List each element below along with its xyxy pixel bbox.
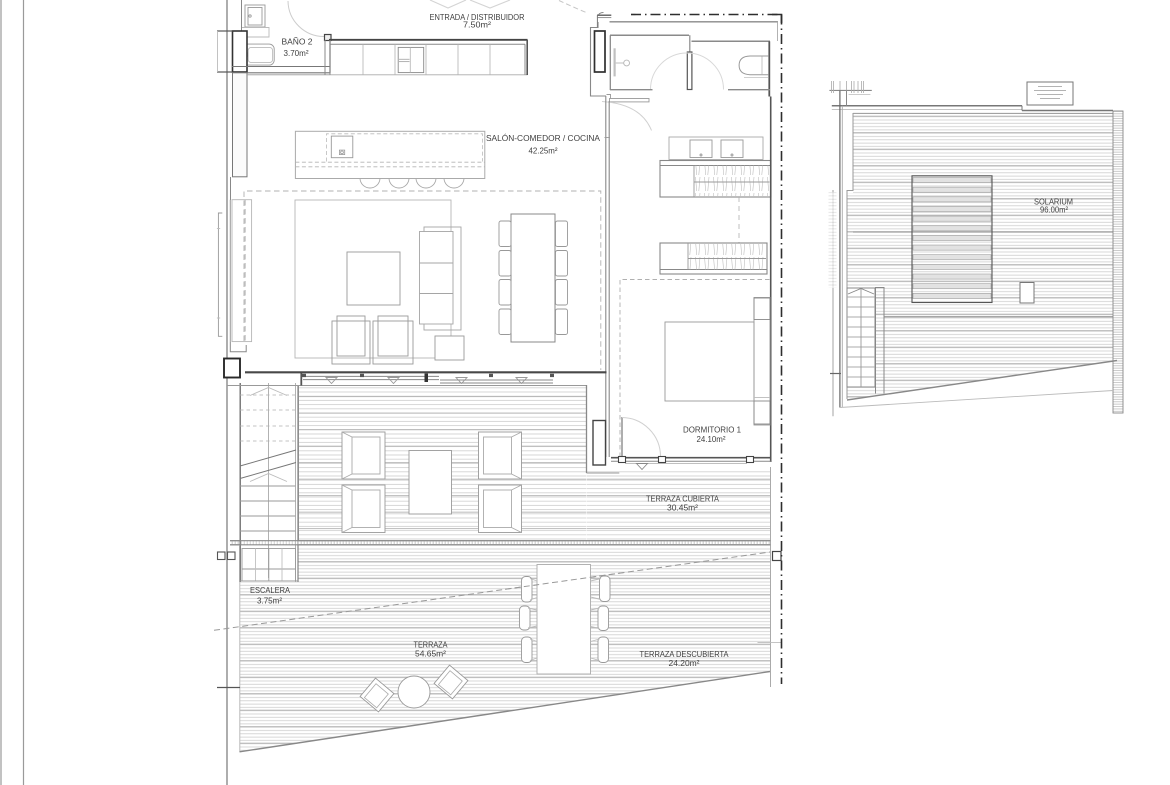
svg-text:24.10m²: 24.10m²	[697, 434, 726, 444]
svg-text:7.50m²: 7.50m²	[463, 20, 491, 30]
svg-text:96.00m²: 96.00m²	[1040, 205, 1068, 215]
svg-text:54.65m²: 54.65m²	[415, 649, 446, 659]
svg-text:BAÑO 2: BAÑO 2	[282, 37, 313, 47]
svg-text:ESCALERA: ESCALERA	[250, 585, 290, 595]
svg-text:30.45m²: 30.45m²	[667, 503, 698, 513]
svg-text:3.75m²: 3.75m²	[257, 596, 282, 606]
svg-text:3.70m²: 3.70m²	[284, 48, 309, 58]
svg-text:24.20m²: 24.20m²	[669, 658, 700, 668]
svg-text:DORMITORIO 1: DORMITORIO 1	[683, 425, 741, 435]
svg-text:SALÓN-COMEDOR / COCINA: SALÓN-COMEDOR / COCINA	[486, 133, 600, 143]
svg-text:42.25m²: 42.25m²	[529, 146, 558, 156]
